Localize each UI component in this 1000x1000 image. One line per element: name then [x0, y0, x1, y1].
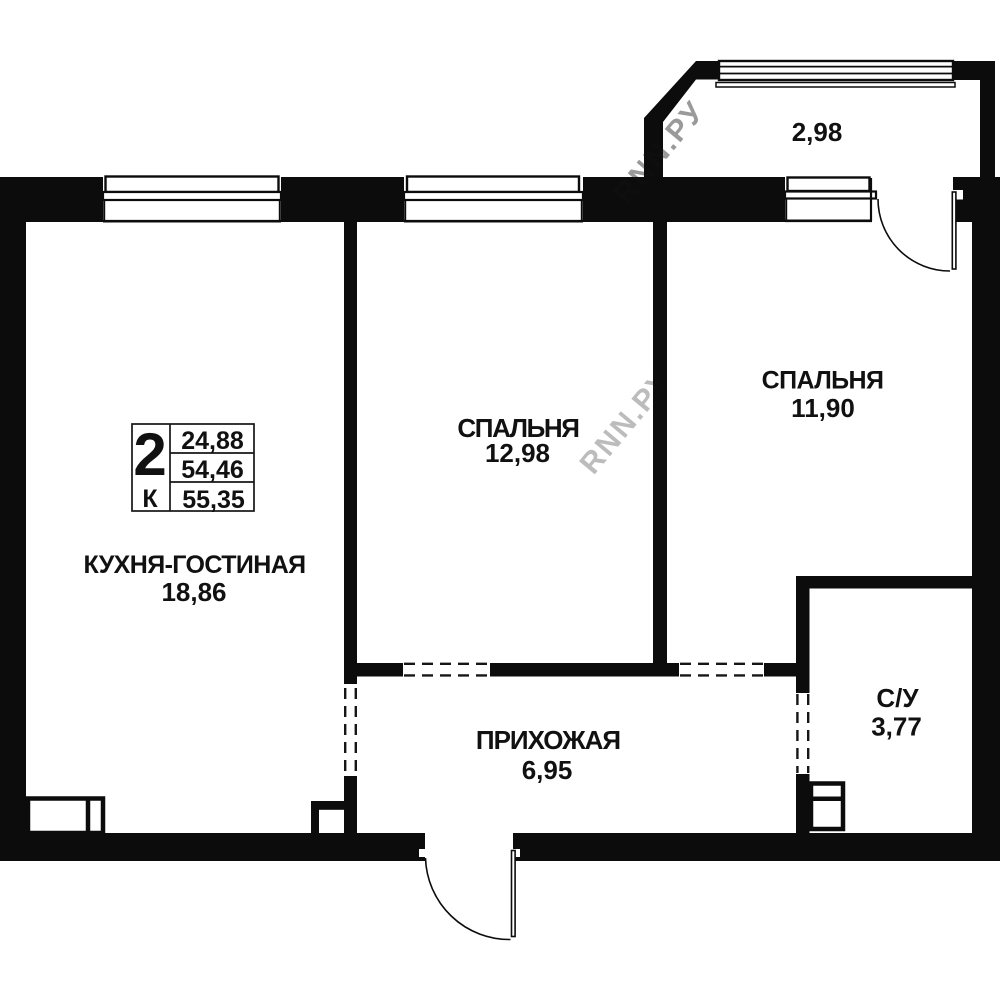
svg-text:ПРИХОЖАЯ: ПРИХОЖАЯ [476, 725, 620, 755]
svg-text:11,90: 11,90 [791, 393, 855, 423]
svg-text:3,77: 3,77 [871, 712, 922, 742]
svg-text:С/У: С/У [876, 683, 919, 713]
svg-text:6,95: 6,95 [522, 755, 573, 785]
svg-text:18,86: 18,86 [161, 577, 226, 607]
svg-text:12,98: 12,98 [485, 438, 550, 468]
svg-text:55,35: 55,35 [182, 486, 245, 514]
svg-text:КУХНЯ-ГОСТИНАЯ: КУХНЯ-ГОСТИНАЯ [83, 551, 305, 579]
svg-text:К: К [142, 485, 158, 513]
svg-text:24,88: 24,88 [181, 427, 244, 455]
svg-text:2,98: 2,98 [792, 117, 843, 147]
svg-text:СПАЛЬНЯ: СПАЛЬНЯ [762, 367, 884, 395]
svg-text:2: 2 [133, 421, 166, 488]
svg-text:54,46: 54,46 [181, 456, 244, 484]
